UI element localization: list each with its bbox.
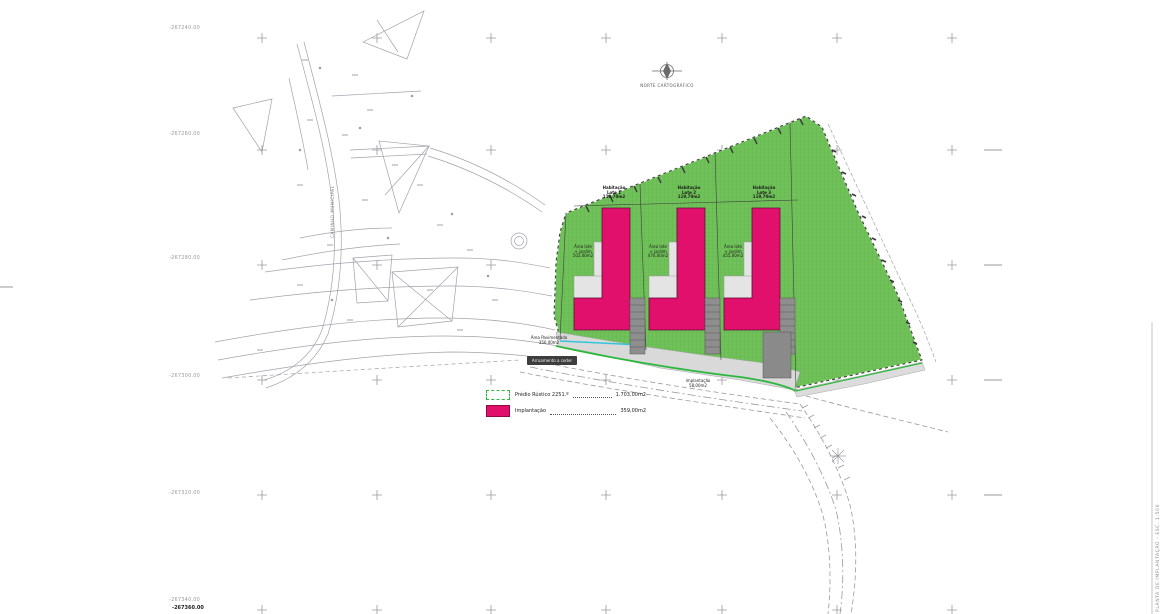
- implantation-swatch-icon: [486, 405, 510, 417]
- lot-2-title: Habitação Lote 2 119,70m2: [662, 186, 716, 200]
- grid-row-label: -267260.00: [164, 131, 200, 137]
- ramp-area: [763, 332, 791, 378]
- paved-area-label: Área Pavimentada 350,00m2: [521, 336, 577, 345]
- lot-2-garden-label: Área lote + jardim 476,00m2: [635, 245, 681, 259]
- legend-label: Prédio Rústico 2251.º: [515, 392, 569, 398]
- tree-symbol-icon: [830, 448, 846, 464]
- lot-3-garden-label: Área lote + jardim 455,00m2: [710, 245, 756, 259]
- legend-item-predio-rustico: Prédio Rústico 2251.º 1.703,00m2: [486, 390, 646, 400]
- legend-value: 359,00m2: [620, 408, 646, 414]
- legend-leader-line: [550, 413, 616, 415]
- bottom-coordinate-label: -267360.00: [172, 605, 204, 611]
- road-badge: Arruamento a ceder: [527, 356, 577, 365]
- parcel-boundary-swatch-icon: [486, 390, 510, 400]
- legend: Prédio Rústico 2251.º 1.703,00m2 Implant…: [486, 390, 646, 422]
- topographic-survey-lines: [215, 11, 560, 388]
- lot-1-title: Habitação Lote 1 119,70m2: [587, 186, 641, 200]
- grid-row-label: -267240.00: [164, 25, 200, 31]
- grid-row-label: -267280.00: [164, 255, 200, 261]
- street-name-label: CAMINHO MUNICIPAL: [330, 186, 335, 238]
- legend-leader-line: [573, 396, 612, 398]
- grid-row-label: -267320.00: [164, 490, 200, 496]
- legend-item-implantacao: Implantação 359,00m2: [486, 405, 646, 417]
- north-arrow-label: NORTE CARTOGRÁFICO: [631, 83, 703, 88]
- north-arrow-icon: [652, 62, 682, 80]
- lot-3-title: Habitação Lote 3 119,70m2: [737, 186, 791, 200]
- legend-label: Implantação: [515, 408, 546, 414]
- site-plan-canvas: -267240.00 -267260.00 -267280.00 -267300…: [0, 0, 1170, 614]
- lot-1-garden-label: Área lote + jardim 502,00m2: [560, 245, 606, 259]
- implant-note: implantação 58,00m2: [670, 379, 726, 388]
- sheet-stamp-label: PLANTA DE IMPLANTAÇÃO - ESC. 1:500: [1156, 504, 1161, 612]
- grid-row-label: -267340.00: [164, 597, 200, 603]
- site-plan-drawing: [0, 0, 1170, 614]
- grid-row-label: -267300.00: [164, 373, 200, 379]
- legend-value: 1.703,00m2: [616, 392, 646, 398]
